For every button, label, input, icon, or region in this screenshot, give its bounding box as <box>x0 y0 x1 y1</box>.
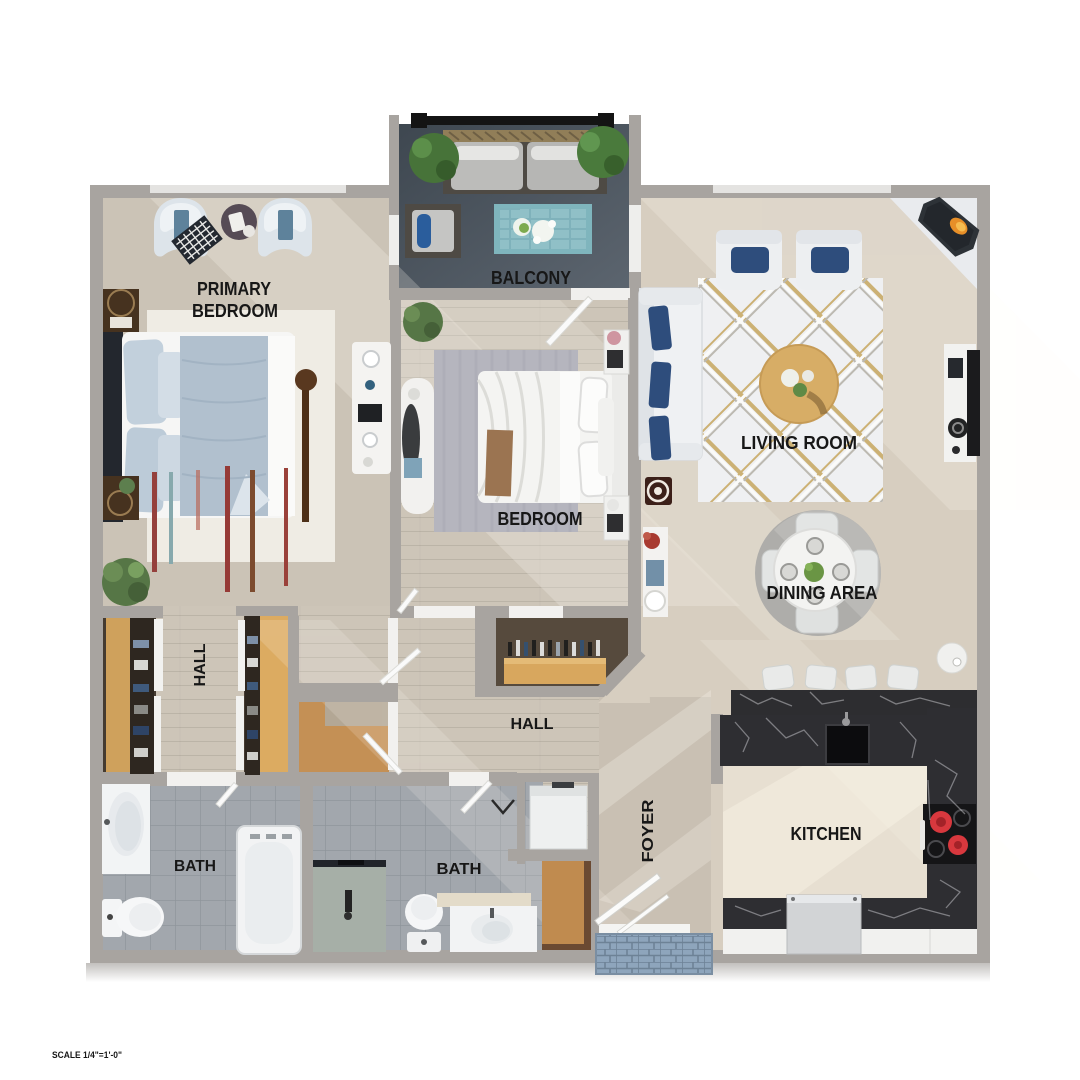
svg-text:BATH: BATH <box>174 858 216 875</box>
svg-text:PRIMARY: PRIMARY <box>197 279 271 299</box>
svg-text:HALL: HALL <box>511 716 554 733</box>
svg-text:BEDROOM: BEDROOM <box>192 301 278 321</box>
svg-text:LIVING ROOM: LIVING ROOM <box>741 433 857 453</box>
svg-text:DINING AREA: DINING AREA <box>767 583 878 603</box>
svg-text:BALCONY: BALCONY <box>491 268 571 288</box>
svg-text:KITCHEN: KITCHEN <box>791 824 862 844</box>
svg-text:HALL: HALL <box>192 643 209 686</box>
svg-text:BEDROOM: BEDROOM <box>498 509 583 529</box>
svg-text:SCALE 1/4"=1'-0": SCALE 1/4"=1'-0" <box>52 1050 122 1061</box>
svg-text:FOYER: FOYER <box>640 799 657 863</box>
svg-text:BATH: BATH <box>437 861 482 878</box>
